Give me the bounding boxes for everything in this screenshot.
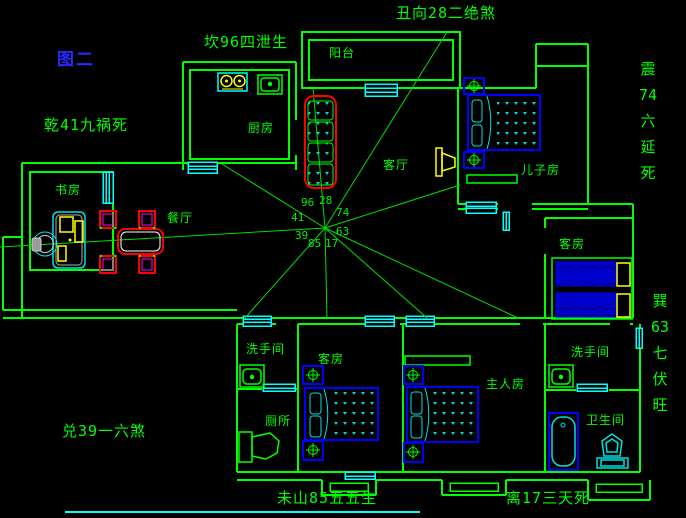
study-desk	[32, 212, 85, 268]
toilet-left	[239, 432, 279, 462]
window-midwall-2	[365, 316, 394, 326]
window-kitchen	[188, 162, 217, 173]
room-label-toilet: 厕所	[265, 415, 291, 427]
compass-number-ne: 74	[336, 207, 349, 218]
window-bathroom-right	[636, 328, 642, 348]
room-label-washroom-right: 洗手间	[571, 346, 610, 358]
sink-left	[240, 365, 264, 387]
floorplan-drawing	[0, 0, 686, 518]
room-label-master: 主人房	[486, 378, 525, 390]
annotation-bottom-right: 离17三天死	[506, 491, 590, 506]
compass-number-s: 85	[308, 238, 321, 249]
window-balcony	[365, 84, 397, 96]
window-study	[103, 172, 113, 203]
room-label-guest-bottom: 客房	[318, 353, 344, 365]
kitchen-sink	[258, 75, 282, 94]
dining-set	[100, 211, 163, 273]
annotation-left: 乾41九祸死	[44, 118, 128, 133]
door-son-room	[503, 212, 509, 230]
room-label-living: 客厅	[383, 159, 409, 171]
compass-number-se: 17	[325, 238, 338, 249]
room-label-washroom-left: 洗手间	[246, 343, 285, 355]
room-label-kitchen: 厨房	[248, 122, 274, 134]
door-washroom-right	[577, 384, 607, 391]
room-label-son-room: 儿子房	[521, 164, 560, 176]
window-midwall-3	[406, 316, 434, 326]
annotation-right-upper: 震74六延死	[634, 56, 662, 186]
window-midwall-1	[243, 316, 271, 326]
room-label-study: 书房	[55, 184, 81, 196]
room-label-balcony: 阳台	[329, 47, 355, 59]
compass-number-w: 41	[291, 212, 304, 223]
dining-chairs	[100, 211, 155, 273]
bottom-border-line	[65, 511, 420, 513]
guest-bottom-bed	[303, 366, 378, 460]
door-guest-bottom	[345, 472, 375, 479]
annotation-top: 丑向28二绝煞	[396, 6, 496, 21]
master-bed	[404, 356, 478, 462]
compass-number-n: 28	[319, 195, 332, 206]
compass-number-sw: 39	[295, 230, 308, 241]
annotation-bottom-center: 未山85五五生	[277, 491, 377, 506]
bathtub	[549, 413, 578, 470]
toilet-right	[597, 434, 628, 468]
figure-label: 图二	[57, 52, 95, 69]
annotation-bottom-left: 兑39一六煞	[62, 424, 146, 439]
annotation-right-lower: 巽63七伏旺	[646, 288, 674, 418]
tv	[436, 148, 455, 176]
window-son-room	[466, 202, 496, 213]
room-label-bathroom: 卫生间	[586, 414, 625, 426]
compass-number-e: 63	[336, 226, 349, 237]
room-label-guest-right: 客房	[559, 238, 585, 250]
compass-number-nw: 96	[301, 197, 314, 208]
stove	[218, 73, 247, 91]
annotation-top-left: 坎96四泄生	[204, 35, 288, 50]
room-label-dining: 餐厅	[167, 212, 193, 224]
sink-right	[549, 365, 573, 387]
cad-floorplan-screen: 图二 丑向28二绝煞 坎96四泄生 乾41九祸死 震74六延死 巽63七伏旺 兑…	[0, 0, 686, 518]
sofa	[305, 96, 336, 188]
door-washroom-left	[263, 384, 295, 391]
guest-right-beds	[552, 258, 632, 319]
